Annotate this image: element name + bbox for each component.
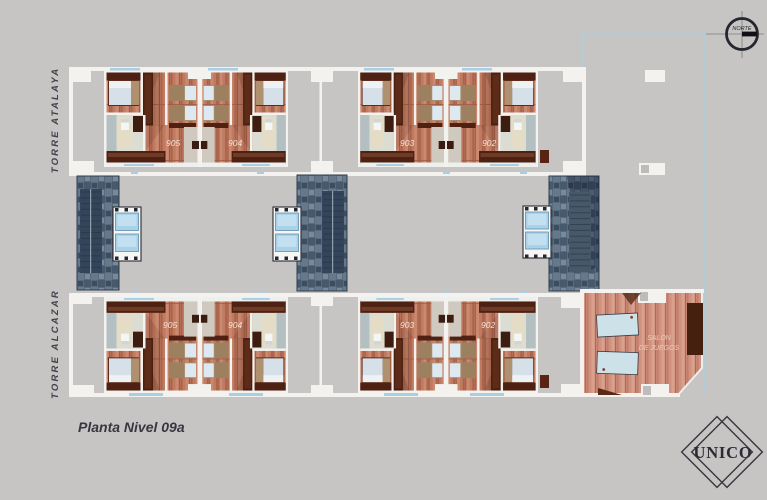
svg-text:903: 903	[400, 138, 414, 148]
svg-text:UNICO: UNICO	[693, 443, 752, 462]
svg-text:SALON: SALON	[647, 335, 672, 342]
svg-text:903: 903	[400, 320, 414, 330]
svg-text:TORRE ALCAZAR: TORRE ALCAZAR	[50, 289, 61, 399]
svg-text:905: 905	[163, 320, 177, 330]
svg-text:Planta Nivel 09a: Planta Nivel 09a	[78, 419, 185, 435]
svg-text:902: 902	[481, 320, 495, 330]
svg-text:904: 904	[228, 320, 242, 330]
svg-text:NORTE: NORTE	[732, 26, 751, 32]
svg-text:DE JUEGOS: DE JUEGOS	[639, 345, 680, 352]
svg-text:904: 904	[228, 138, 242, 148]
svg-text:TORRE ATALAYA: TORRE ATALAYA	[50, 67, 61, 174]
svg-text:902: 902	[482, 138, 496, 148]
svg-text:905: 905	[166, 138, 180, 148]
